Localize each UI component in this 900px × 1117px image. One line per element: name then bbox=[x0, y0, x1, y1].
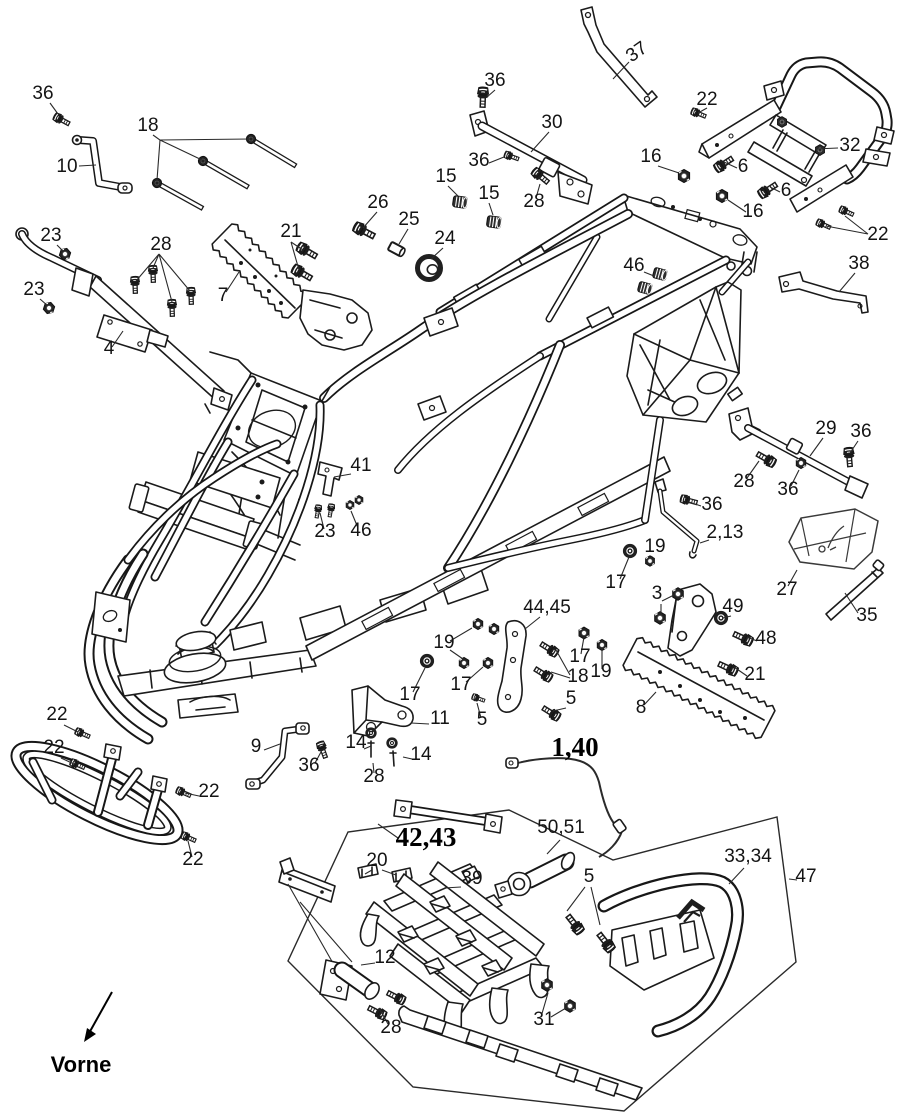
svg-text:48: 48 bbox=[755, 628, 776, 649]
svg-text:17: 17 bbox=[399, 684, 420, 705]
svg-text:14: 14 bbox=[410, 744, 432, 765]
svg-text:49: 49 bbox=[722, 596, 743, 617]
svg-text:46: 46 bbox=[623, 255, 644, 276]
svg-text:22: 22 bbox=[182, 849, 203, 870]
svg-text:22: 22 bbox=[696, 89, 717, 110]
svg-text:29: 29 bbox=[815, 418, 836, 439]
svg-text:5: 5 bbox=[584, 866, 595, 887]
svg-text:39: 39 bbox=[461, 868, 482, 889]
svg-text:31: 31 bbox=[533, 1009, 554, 1030]
svg-text:16: 16 bbox=[640, 146, 661, 167]
svg-text:Vorne: Vorne bbox=[51, 1052, 112, 1077]
svg-text:8: 8 bbox=[636, 697, 647, 718]
svg-text:23: 23 bbox=[314, 521, 335, 542]
svg-text:21: 21 bbox=[280, 221, 301, 242]
svg-text:36: 36 bbox=[468, 150, 489, 171]
svg-text:2,13: 2,13 bbox=[707, 522, 744, 543]
svg-text:18: 18 bbox=[567, 666, 588, 687]
svg-text:17: 17 bbox=[450, 674, 471, 695]
svg-text:5: 5 bbox=[566, 688, 577, 709]
svg-text:11: 11 bbox=[430, 708, 450, 729]
svg-text:35: 35 bbox=[856, 605, 877, 626]
svg-text:27: 27 bbox=[776, 579, 797, 600]
svg-text:36: 36 bbox=[850, 421, 871, 442]
svg-text:6: 6 bbox=[781, 180, 792, 201]
svg-text:17: 17 bbox=[569, 646, 590, 667]
svg-text:21: 21 bbox=[744, 664, 765, 685]
svg-text:4: 4 bbox=[104, 338, 115, 359]
svg-text:22: 22 bbox=[867, 224, 888, 245]
svg-text:38: 38 bbox=[848, 253, 869, 274]
svg-text:15: 15 bbox=[435, 166, 456, 187]
svg-text:18: 18 bbox=[137, 115, 158, 136]
svg-text:15: 15 bbox=[478, 183, 499, 204]
svg-text:41: 41 bbox=[350, 455, 371, 476]
svg-text:9: 9 bbox=[251, 736, 262, 757]
svg-text:32: 32 bbox=[839, 135, 860, 156]
svg-text:23: 23 bbox=[23, 279, 44, 300]
svg-text:10: 10 bbox=[56, 156, 77, 177]
svg-text:36: 36 bbox=[298, 755, 319, 776]
svg-text:26: 26 bbox=[367, 192, 388, 213]
svg-text:46: 46 bbox=[350, 520, 371, 541]
svg-text:17: 17 bbox=[605, 572, 626, 593]
svg-text:3: 3 bbox=[652, 583, 663, 604]
svg-text:23: 23 bbox=[40, 225, 61, 246]
svg-text:1,40: 1,40 bbox=[551, 732, 598, 762]
svg-text:22: 22 bbox=[43, 737, 64, 758]
svg-text:28: 28 bbox=[523, 191, 544, 212]
svg-text:6: 6 bbox=[738, 156, 749, 177]
svg-text:28: 28 bbox=[733, 471, 754, 492]
svg-text:19: 19 bbox=[590, 661, 611, 682]
svg-text:20: 20 bbox=[366, 850, 387, 871]
svg-text:30: 30 bbox=[541, 112, 562, 133]
svg-text:12: 12 bbox=[374, 947, 395, 968]
svg-text:36: 36 bbox=[777, 479, 798, 500]
svg-text:36: 36 bbox=[701, 494, 722, 515]
svg-text:19: 19 bbox=[644, 536, 665, 557]
svg-text:7: 7 bbox=[218, 285, 229, 306]
svg-text:28: 28 bbox=[380, 1017, 401, 1038]
svg-text:24: 24 bbox=[434, 228, 456, 249]
svg-text:42,43: 42,43 bbox=[396, 822, 457, 852]
svg-text:50,51: 50,51 bbox=[537, 817, 585, 838]
svg-text:22: 22 bbox=[46, 704, 67, 725]
svg-text:36: 36 bbox=[32, 83, 53, 104]
svg-text:47: 47 bbox=[795, 866, 816, 887]
svg-text:19: 19 bbox=[433, 632, 454, 653]
svg-text:14: 14 bbox=[345, 732, 367, 753]
svg-text:33,34: 33,34 bbox=[724, 846, 772, 867]
svg-text:5: 5 bbox=[477, 709, 488, 730]
svg-text:28: 28 bbox=[150, 234, 171, 255]
svg-text:28: 28 bbox=[363, 766, 384, 787]
svg-text:44,45: 44,45 bbox=[523, 597, 571, 618]
svg-text:22: 22 bbox=[198, 781, 219, 802]
svg-text:25: 25 bbox=[398, 209, 419, 230]
svg-text:36: 36 bbox=[484, 70, 505, 91]
svg-text:16: 16 bbox=[742, 201, 763, 222]
